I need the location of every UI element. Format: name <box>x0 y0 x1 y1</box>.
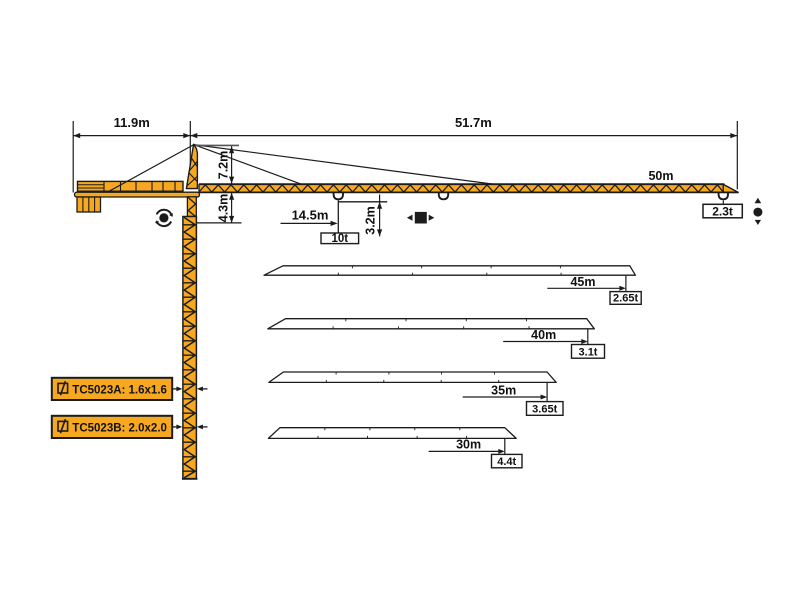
svg-text:30m: 30m <box>456 438 481 452</box>
svg-text:2.65t: 2.65t <box>613 293 638 305</box>
svg-text:35m: 35m <box>491 383 516 397</box>
svg-text:3.1t: 3.1t <box>579 346 598 358</box>
svg-text:50m: 50m <box>648 169 673 183</box>
svg-text:45m: 45m <box>570 275 595 289</box>
svg-text:3.2m: 3.2m <box>363 206 377 235</box>
svg-text:3.65t: 3.65t <box>532 403 557 415</box>
svg-text:10t: 10t <box>331 233 348 245</box>
svg-text:TC5023A: 1.6x1.6: TC5023A: 1.6x1.6 <box>72 384 167 396</box>
svg-text:14.5m: 14.5m <box>292 208 329 223</box>
svg-text:11.9m: 11.9m <box>114 115 150 130</box>
svg-text:4.4t: 4.4t <box>497 456 516 468</box>
svg-text:7.2m: 7.2m <box>216 151 230 180</box>
svg-text:2.3t: 2.3t <box>712 204 733 218</box>
svg-text:40m: 40m <box>531 328 556 342</box>
svg-text:4.3m: 4.3m <box>216 194 230 223</box>
svg-text:TC5023B: 2.0x2.0: TC5023B: 2.0x2.0 <box>72 422 167 434</box>
svg-text:51.7m: 51.7m <box>455 115 492 130</box>
